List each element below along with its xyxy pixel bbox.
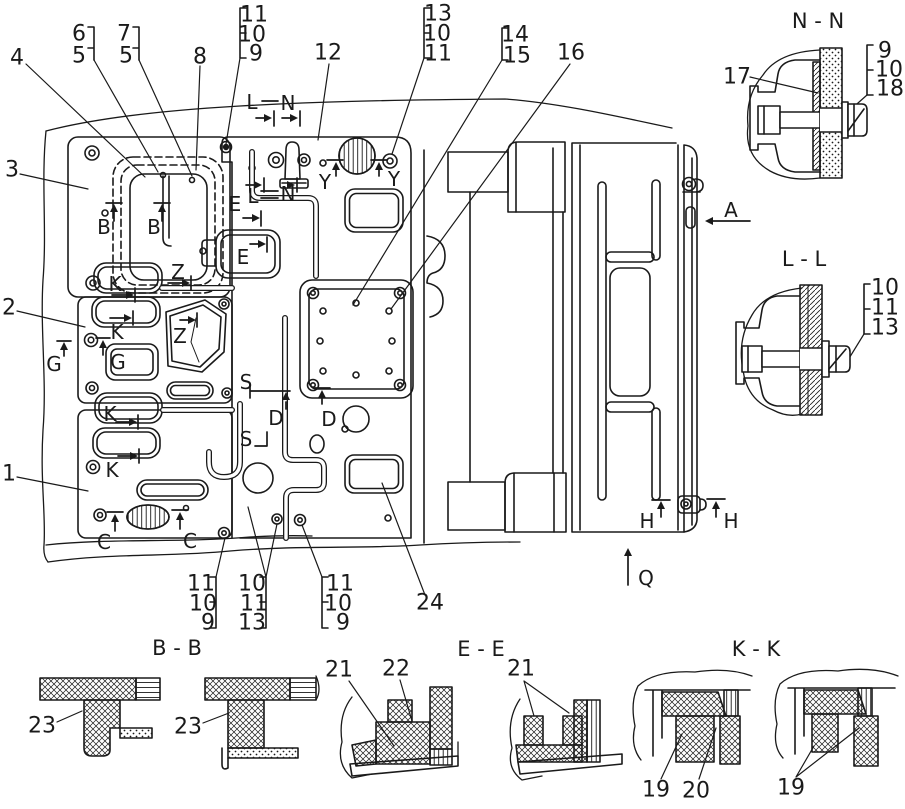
callout-22: 22: [382, 657, 410, 682]
callout-13d: 13: [238, 611, 266, 636]
marker-B1: B: [97, 215, 111, 239]
stiffener-slots: [598, 180, 660, 500]
detail-section-ee: [340, 687, 622, 780]
cover-plate: [300, 280, 413, 398]
marker-N2: N: [281, 182, 296, 206]
callout-15: 15: [503, 44, 531, 69]
marker-E1: E: [229, 192, 242, 216]
callout-8: 8: [193, 45, 207, 70]
marker-L2: L: [247, 184, 259, 208]
callout-5b: 5: [119, 44, 133, 69]
callout-23b: 23: [174, 715, 202, 740]
opening-top-right: [345, 189, 403, 232]
marker-H1: H: [639, 509, 654, 533]
section-title-ll: L - L: [782, 247, 827, 271]
marker-N1: N: [281, 91, 296, 115]
parts-diagram-figure: 4657581110931213101114151621111091011131…: [0, 0, 905, 809]
marker-Z1: Z: [171, 260, 185, 284]
marker-H2: H: [723, 509, 738, 533]
oval-hole: [310, 435, 324, 453]
grommet-oval: [127, 505, 169, 529]
round-hole-large: [243, 463, 273, 493]
callout-21b: 21: [507, 657, 535, 682]
detail-section-nn: [747, 48, 867, 179]
callout-21a: 21: [325, 658, 353, 683]
grommet-round: [339, 138, 375, 174]
callout-23a: 23: [28, 714, 56, 739]
round-hole: [343, 406, 369, 432]
callout-24: 24: [416, 591, 444, 616]
marker-K2: K: [110, 320, 124, 344]
marker-D1: D: [268, 406, 283, 430]
callout-13g: 13: [871, 316, 899, 341]
detail-section-kk: [633, 669, 898, 766]
section-title-bb: B - B: [152, 636, 202, 660]
marker-D2: D: [321, 407, 336, 431]
callout-18: 18: [876, 77, 904, 102]
marker-C2: C: [183, 529, 197, 553]
callout-12: 12: [314, 41, 342, 66]
callout-9c: 9: [201, 611, 215, 636]
marker-Y1: Y: [318, 170, 332, 194]
callout-5a: 5: [72, 44, 86, 69]
callout-1: 1: [2, 462, 16, 487]
callout-4: 4: [10, 46, 24, 71]
section-title-nn: N - N: [792, 9, 844, 33]
marker-S1: S: [240, 370, 253, 394]
marker-C1: C: [97, 530, 111, 554]
callout-20: 20: [682, 779, 710, 804]
callout-9a: 9: [249, 42, 263, 67]
marker-K4: K: [105, 458, 119, 482]
callout-17: 17: [723, 65, 751, 90]
callout-2: 2: [2, 296, 16, 321]
parts-diagram-page: 4657581110931213101114151621111091011131…: [0, 0, 905, 809]
marker-A: A: [724, 198, 738, 222]
section-title-kk: K - K: [732, 637, 782, 661]
edge-notch: [686, 207, 695, 228]
section-title-ee: E - E: [457, 637, 504, 661]
detail-section-ll: [736, 285, 850, 415]
marker-G1: G: [46, 352, 62, 376]
panel2-slot: [167, 382, 213, 399]
marker-Z2: Z: [173, 324, 187, 348]
callout-9e: 9: [336, 611, 350, 636]
marker-Q: Q: [638, 566, 654, 590]
bolt-assembly-ll: [742, 341, 850, 377]
left-panel-stack: [68, 137, 232, 538]
side-frame: [427, 142, 706, 532]
marker-K1: K: [108, 272, 122, 296]
marker-E2: E: [237, 245, 250, 269]
marker-K3: K: [103, 402, 117, 426]
callout-19b: 19: [777, 776, 805, 801]
callout-11b: 11: [424, 42, 452, 67]
callout-3: 3: [5, 158, 19, 183]
callout-16: 16: [557, 41, 585, 66]
panel1-slot: [137, 480, 208, 500]
marker-Y2: Y: [387, 167, 401, 191]
marker-G2: G: [110, 350, 126, 374]
marker-B2: B: [147, 215, 161, 239]
marker-L1: L: [246, 90, 258, 114]
marker-S2: S: [240, 427, 253, 451]
callout-19a: 19: [642, 778, 670, 803]
opening-24: [345, 455, 403, 493]
